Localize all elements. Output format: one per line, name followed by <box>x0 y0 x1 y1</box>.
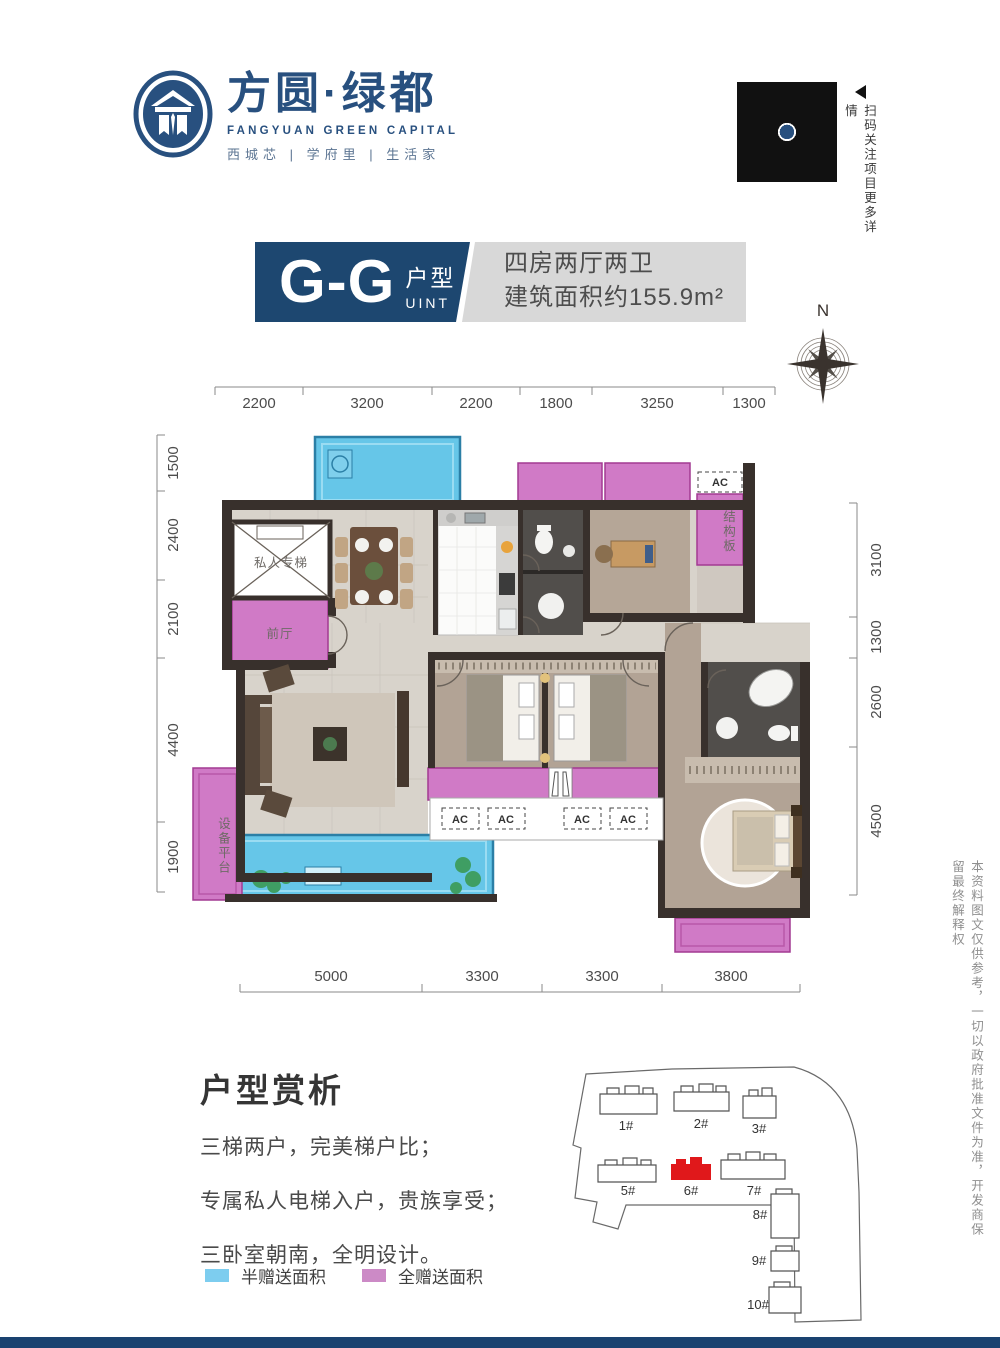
dim-top: 3250 <box>640 395 673 412</box>
unit-layout: 四房两厅两卫 <box>504 247 746 281</box>
kitchen <box>438 510 518 635</box>
floor-plan: 2200 3200 2200 1800 3250 1300 1500 2400 … <box>145 375 885 1020</box>
equipment-platform-label: 设备平台 <box>203 790 233 902</box>
bay-door <box>549 768 572 800</box>
unit-area: 建筑面积约155.9m² <box>504 281 746 315</box>
dim-bottom: 3800 <box>714 968 747 985</box>
compass-north-label: N <box>817 301 829 320</box>
dim-bottom: 5000 <box>314 968 347 985</box>
building-label: 10# <box>747 1297 769 1312</box>
building-label: 6# <box>684 1183 699 1198</box>
site-building-highlighted <box>671 1157 711 1180</box>
legend: 半赠送面积 全赠送面积 <box>205 1263 483 1288</box>
private-elevator: 私人专梯 <box>232 522 330 598</box>
structure-board-label: 结构板 <box>706 502 738 562</box>
legend-half-gift-label: 半赠送面积 <box>241 1263 326 1288</box>
dining-set <box>335 527 413 609</box>
bathroom-1 <box>523 510 583 635</box>
building-label: 1# <box>619 1118 634 1133</box>
brand-logo: 方圆·绿都 FANGYUAN GREEN CAPITAL 西城芯 | 学府里 |… <box>133 70 458 163</box>
qr-code <box>737 82 837 182</box>
unit-type-cn: 户型 <box>405 259 455 293</box>
ac-label: AC <box>712 477 728 489</box>
analysis-section: 户型赏析 三梯两户，完美梯户比； 专属私人电梯入户，贵族享受； 三卧室朝南，全明… <box>200 1064 560 1274</box>
analysis-line: 专属私人电梯入户，贵族享受； <box>200 1183 560 1220</box>
foyer-label: 前厅 <box>266 626 293 641</box>
analysis-heading: 户型赏析 <box>200 1064 560 1112</box>
elevator-label: 私人专梯 <box>254 555 308 570</box>
unit-summary-box: 四房两厅两卫 建筑面积约155.9m² <box>462 242 746 322</box>
dim-top: 1800 <box>539 395 572 412</box>
dim-right: 3100 <box>868 543 885 576</box>
ac-label: AC <box>574 814 590 826</box>
footer-bar <box>0 1337 1000 1348</box>
legend-full-gift-label: 全赠送面积 <box>398 1263 483 1288</box>
building-label: 7# <box>747 1183 762 1198</box>
flyer-page: 方圆·绿都 FANGYUAN GREEN CAPITAL 西城芯 | 学府里 |… <box>0 0 1000 1348</box>
bathroom-master <box>708 662 800 757</box>
analysis-line: 三梯两户，完美梯户比； <box>200 1129 560 1166</box>
site-plan: 1# 2# 3# 5# 6# 7# 8# 9# 10# <box>562 1052 897 1337</box>
dim-top: 1300 <box>732 395 765 412</box>
dim-right: 4500 <box>868 804 885 837</box>
building-label: 9# <box>752 1253 767 1268</box>
dim-top: 3200 <box>350 395 383 412</box>
qr-caption: 扫码关注项目更多详情 <box>841 104 879 236</box>
building-label: 5# <box>621 1183 636 1198</box>
unit-type-en: UINT <box>405 295 455 311</box>
dim-left: 2400 <box>165 518 182 551</box>
dim-right: 2600 <box>868 685 885 718</box>
dim-left: 2100 <box>165 602 182 635</box>
dim-bottom: 3300 <box>585 968 618 985</box>
legend-full-gift-swatch <box>362 1269 386 1282</box>
brand-text: 方圆·绿都 FANGYUAN GREEN CAPITAL 西城芯 | 学府里 |… <box>227 70 458 163</box>
dim-right: 1300 <box>868 620 885 653</box>
building-label: 2# <box>694 1116 709 1131</box>
unit-type: 户型 UINT <box>405 259 455 311</box>
legend-half-gift-swatch <box>205 1269 229 1282</box>
dim-left: 1900 <box>165 840 182 873</box>
ac-label: AC <box>620 814 636 826</box>
dim-left: 1500 <box>165 446 182 479</box>
building-label: 3# <box>752 1121 767 1136</box>
dim-top: 2200 <box>242 395 275 412</box>
dim-bottom: 3300 <box>465 968 498 985</box>
unit-title-box: G-G 户型 UINT <box>255 242 470 322</box>
ac-label: AC <box>452 814 468 826</box>
dim-left: 4400 <box>165 723 182 756</box>
qr-caption-block: 扫码关注项目更多详情 <box>841 85 879 236</box>
brand-tagline: 西城芯 | 学府里 | 生活家 <box>227 144 458 163</box>
qr-block: 扫码关注项目更多详情 <box>737 82 837 187</box>
brand-subtitle: FANGYUAN GREEN CAPITAL <box>227 125 458 137</box>
disclaimer-text: 本资料图文仅供参考，一切以政府批准文件为准，开发商保留最终解释权 <box>948 860 986 1238</box>
unit-code: G-G <box>279 252 395 312</box>
qr-center-logo <box>779 124 795 140</box>
brand-title: 方圆·绿都 <box>227 70 458 118</box>
left-triangle-icon <box>855 85 866 99</box>
ac-label: AC <box>498 814 514 826</box>
site-building-labels: 1# 2# 3# 5# 6# 7# 8# 9# 10# <box>619 1116 770 1312</box>
brand-emblem-icon <box>133 70 213 158</box>
building-label: 8# <box>753 1207 768 1222</box>
dim-top: 2200 <box>459 395 492 412</box>
